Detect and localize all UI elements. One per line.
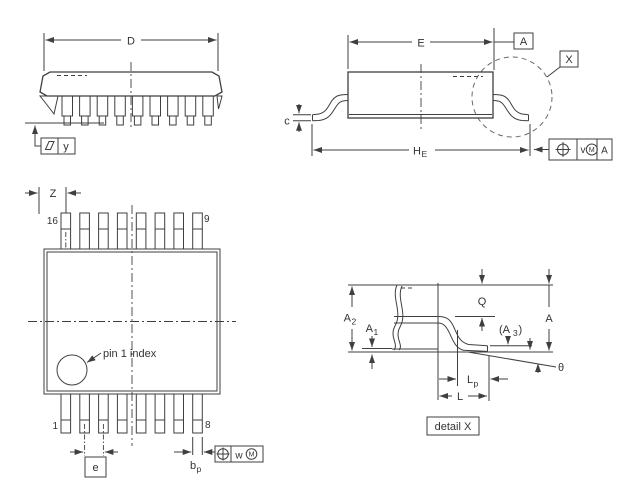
dim-theta-label: θ bbox=[558, 362, 564, 374]
dimension-A3: (A 3 ) bbox=[490, 324, 532, 346]
dimension-A: A bbox=[545, 269, 553, 351]
dim-a2-sub: 2 bbox=[352, 317, 357, 327]
bottom-pins bbox=[61, 394, 202, 456]
dim-bp-sub: p bbox=[197, 464, 202, 474]
dimension-theta: θ bbox=[468, 338, 564, 374]
dim-a3-open: (A bbox=[499, 324, 511, 336]
dim-d-label: D bbox=[127, 36, 135, 48]
modifier-m-label: M bbox=[249, 452, 255, 459]
detail-caption: detail X bbox=[427, 417, 479, 435]
dimension-Z: Z bbox=[25, 187, 81, 214]
pin8-label: 8 bbox=[205, 420, 211, 431]
dim-q-label: Q bbox=[478, 296, 487, 308]
dimension-bp: b p bbox=[174, 437, 215, 474]
drawing-canvas: D y bbox=[0, 0, 621, 487]
package-body-top: pin 1 index bbox=[28, 205, 236, 446]
perspective-view: D y bbox=[25, 33, 222, 154]
detail-region-circle bbox=[472, 57, 552, 137]
position-symbol-icon bbox=[556, 142, 571, 157]
top-view: Z 16 9 pin 1 index bbox=[25, 187, 263, 477]
pin1-index-label: pin 1 index bbox=[103, 348, 157, 360]
dim-e-label: E bbox=[417, 38, 424, 50]
dim-z-label: Z bbox=[50, 188, 57, 200]
detail-x-letter: X bbox=[565, 54, 573, 66]
dim-a3-sub: 3 bbox=[513, 328, 518, 338]
dim-bp-base: b bbox=[190, 460, 196, 472]
leads-3d bbox=[62, 96, 213, 125]
pin1-index-circle bbox=[57, 355, 87, 385]
dim-a3-close: ) bbox=[519, 324, 523, 336]
dim-a2-base: A bbox=[344, 313, 352, 325]
dim-l-label: L bbox=[457, 391, 463, 403]
flatness-value: y bbox=[63, 141, 69, 153]
pin16-label: 16 bbox=[47, 216, 59, 227]
dimension-L: L bbox=[440, 391, 488, 403]
detail-x-view: Q (A 3 ) A 2 A 1 A bbox=[344, 269, 564, 435]
dim-e-label: e bbox=[92, 462, 98, 474]
package-outline-drawing: D y bbox=[0, 0, 621, 487]
dimension-Lp: L p bbox=[439, 330, 508, 401]
dimension-e: e bbox=[70, 452, 118, 477]
dim-he-sub: E bbox=[422, 149, 428, 159]
dim-a1-sub: 1 bbox=[374, 327, 379, 337]
leads-side bbox=[313, 95, 529, 121]
pin9-label: 9 bbox=[204, 214, 210, 225]
tolerance-frame-w: w M bbox=[215, 446, 263, 462]
flatness-parallelogram-icon bbox=[46, 142, 55, 150]
lead-section bbox=[438, 317, 488, 352]
tolerance-v-label: v bbox=[581, 145, 586, 156]
dim-a-label: A bbox=[545, 313, 553, 325]
dimension-A1: A 1 bbox=[362, 323, 392, 369]
detail-x-callout: X bbox=[472, 51, 578, 137]
position-symbol-icon bbox=[217, 448, 230, 461]
seating-plane-flatness: y bbox=[25, 123, 104, 154]
detail-caption-label: detail X bbox=[435, 421, 472, 433]
datum-a-label: A bbox=[520, 36, 528, 48]
tolerance-w-label: w bbox=[234, 451, 243, 462]
dimension-c: c bbox=[284, 104, 311, 132]
modifier-m-label: M bbox=[589, 147, 595, 154]
dimension-Q: Q bbox=[455, 269, 495, 331]
dim-lp-sub: p bbox=[474, 379, 479, 389]
datum-ref-label: A bbox=[601, 146, 608, 157]
dim-he-base: H bbox=[413, 146, 421, 158]
body-section bbox=[392, 283, 438, 400]
pin1-label: 1 bbox=[52, 421, 58, 432]
dim-lp-base: L bbox=[467, 374, 473, 386]
dim-a1-base: A bbox=[366, 323, 374, 335]
package-body-side bbox=[348, 64, 493, 131]
dimension-HE: H E bbox=[312, 124, 530, 159]
dim-c-label: c bbox=[284, 116, 290, 128]
dimension-A2: A 2 bbox=[344, 287, 357, 351]
tolerance-frame-v: v M A bbox=[534, 139, 612, 160]
dimension-E: E A bbox=[348, 28, 533, 70]
side-view: E A X c bbox=[284, 28, 612, 160]
